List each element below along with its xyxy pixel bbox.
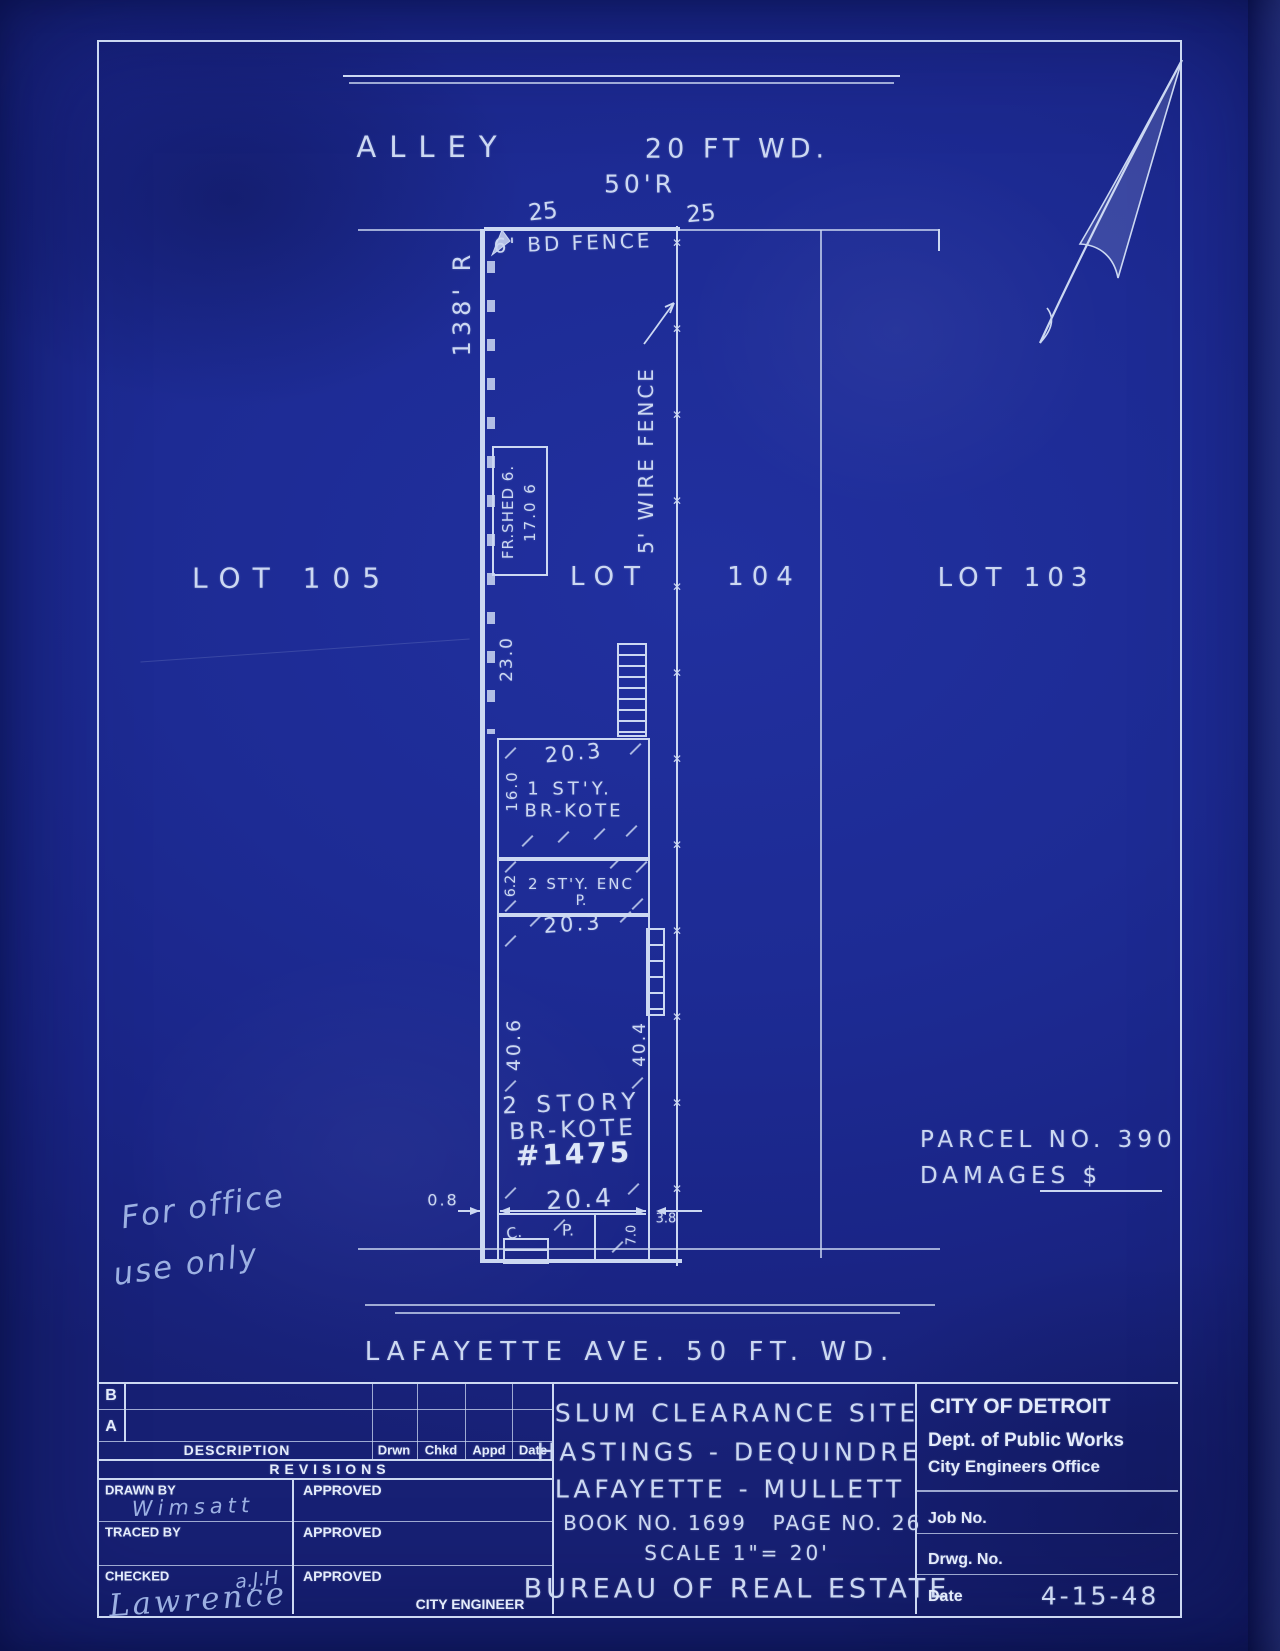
col-chkd: Chkd xyxy=(425,1443,458,1458)
blueprint-sheet: ALLEY 20 FT WD. 50'R 25 25 138' R 6' BD … xyxy=(0,0,1280,1651)
lot-103-label: LOT 103 xyxy=(938,563,1095,593)
first-story-width: 20.3 xyxy=(544,738,605,767)
dim-arrow-west xyxy=(470,1207,480,1215)
scale-label: SCALE 1"= 20' xyxy=(644,1541,829,1565)
dim-25-right: 25 xyxy=(685,200,716,228)
book-no-label: BOOK NO. 1699 xyxy=(563,1511,747,1535)
front-porch-divider xyxy=(594,1213,596,1259)
damages-blank-line xyxy=(1040,1190,1162,1192)
city-engineer-label: CITY ENGINEER xyxy=(416,1596,525,1612)
first-story-line1: 1 ST'Y. xyxy=(527,779,613,800)
rev-col-line-3 xyxy=(465,1382,466,1459)
parcel-no-label: PARCEL NO. 390 xyxy=(920,1127,1177,1153)
street-north-line xyxy=(358,1248,940,1250)
drwg-no-label: Drwg. No. xyxy=(928,1551,1003,1569)
house-number: #1475 xyxy=(515,1135,632,1172)
dim-width-front: 20.4 xyxy=(545,1183,614,1216)
rev-col-line-4 xyxy=(512,1382,513,1459)
sig-row-line-1 xyxy=(97,1521,554,1522)
alley-north-line xyxy=(343,75,900,77)
agency-line1: CITY OF DETROIT xyxy=(930,1395,1110,1419)
date-value: 4-15-48 xyxy=(1041,1582,1160,1611)
rev-letter-divider xyxy=(124,1382,126,1442)
porch-line1: 2 ST'Y. ENC xyxy=(528,875,634,893)
job-no-label: Job No. xyxy=(928,1510,987,1528)
agency-line2: Dept. of Public Works xyxy=(928,1430,1124,1452)
west-radius-label: 138' R xyxy=(448,250,476,357)
agency-rule-2 xyxy=(915,1533,1178,1534)
damages-label: DAMAGES $ xyxy=(920,1163,1102,1189)
alley-label: ALLEY xyxy=(356,130,509,164)
rev-row-a: A xyxy=(105,1418,117,1436)
rear-stairs xyxy=(617,643,647,737)
date-label: Date xyxy=(928,1588,963,1606)
parcel-west-line xyxy=(480,229,485,1263)
agency-rule-3 xyxy=(915,1574,1178,1575)
dim-offset-east: 3.8 xyxy=(656,1212,677,1227)
lot-104-label-right: 104 xyxy=(727,562,801,592)
col-appd: Appd xyxy=(472,1443,505,1458)
approved-label-2: APPROVED xyxy=(303,1524,382,1540)
house-depth-west: 40.6 xyxy=(503,1017,525,1071)
house-depth-east: 40.4 xyxy=(630,1021,650,1067)
alley-north-line-2 xyxy=(349,82,894,84)
revisions-label: REVISIONS xyxy=(269,1461,390,1477)
street-line-a xyxy=(365,1304,935,1306)
wire-fence-marks: ✕✕✕✕✕✕✕✕✕✕✕✕ xyxy=(670,236,684,1256)
first-story-depth: 16.0 xyxy=(503,770,521,811)
porch-depth: 6.2 xyxy=(503,875,519,897)
porch-line2: P. xyxy=(576,893,587,909)
dim-offset-west: 0.8 xyxy=(427,1191,458,1210)
approved-label-3: APPROVED xyxy=(303,1568,382,1584)
agency-rule-1 xyxy=(915,1490,1178,1492)
rev-row-b: B xyxy=(105,1387,117,1405)
lot-corner-tick xyxy=(938,229,940,251)
street-label: LAFAYETTE AVE. 50 FT. WD. xyxy=(365,1337,896,1367)
curve-radius-label: 50'R xyxy=(604,170,676,199)
lot-103-boundary xyxy=(820,230,822,1258)
titleblock-top-line xyxy=(97,1382,1178,1384)
sig-row-line-2 xyxy=(97,1565,554,1566)
checked-label: CHECKED xyxy=(105,1569,169,1584)
project-line1: SLUM CLEARANCE SITE xyxy=(555,1399,919,1428)
revisions-bottom-line xyxy=(97,1478,554,1480)
front-porch-depth: 7.0 xyxy=(625,1225,640,1246)
bureau-label: BUREAU OF REAL ESTATE xyxy=(524,1574,951,1605)
shed-label: FR.SHED 6. xyxy=(499,465,517,559)
first-story-line2: BR-KOTE xyxy=(525,801,624,822)
front-porch-top-line xyxy=(497,1213,646,1215)
agency-line3: City Engineers Office xyxy=(928,1457,1100,1477)
lot-105-label: LOT 105 xyxy=(192,562,392,595)
north-arrow-icon xyxy=(1022,48,1207,348)
page-no-label: PAGE NO. 26 xyxy=(773,1511,922,1535)
rev-col-line-2 xyxy=(417,1382,418,1459)
street-line-b xyxy=(395,1312,900,1314)
dim-23-0: 23.0 xyxy=(497,636,517,682)
col-description: DESCRIPTION xyxy=(184,1442,291,1458)
signature-divider xyxy=(292,1478,294,1614)
rev-row-line-1 xyxy=(97,1409,554,1410)
rev-col-line-1 xyxy=(372,1382,373,1459)
wire-fence-arrow-icon xyxy=(640,300,680,346)
lot-104-label-left: LOT xyxy=(570,562,650,592)
dim-25-left: 25 xyxy=(527,198,559,227)
front-porch-p: P. xyxy=(562,1221,574,1240)
parcel-south-line xyxy=(480,1259,682,1263)
shed-depth: 17.0 6 xyxy=(521,482,539,542)
project-line2: HASTINGS - DEQUINDRE xyxy=(537,1438,922,1467)
col-drwn: Drwn xyxy=(378,1443,411,1458)
traced-by-label: TRACED BY xyxy=(105,1525,181,1540)
alley-width-label: 20 FT WD. xyxy=(645,134,829,165)
approved-label-1: APPROVED xyxy=(303,1482,382,1498)
wire-fence-label: 5' WIRE FENCE xyxy=(634,366,658,554)
bay-window xyxy=(646,928,665,1016)
drawn-by-value: Wimsatt xyxy=(131,1493,254,1521)
project-line3: LAFAYETTE - MULLETT xyxy=(555,1475,905,1504)
